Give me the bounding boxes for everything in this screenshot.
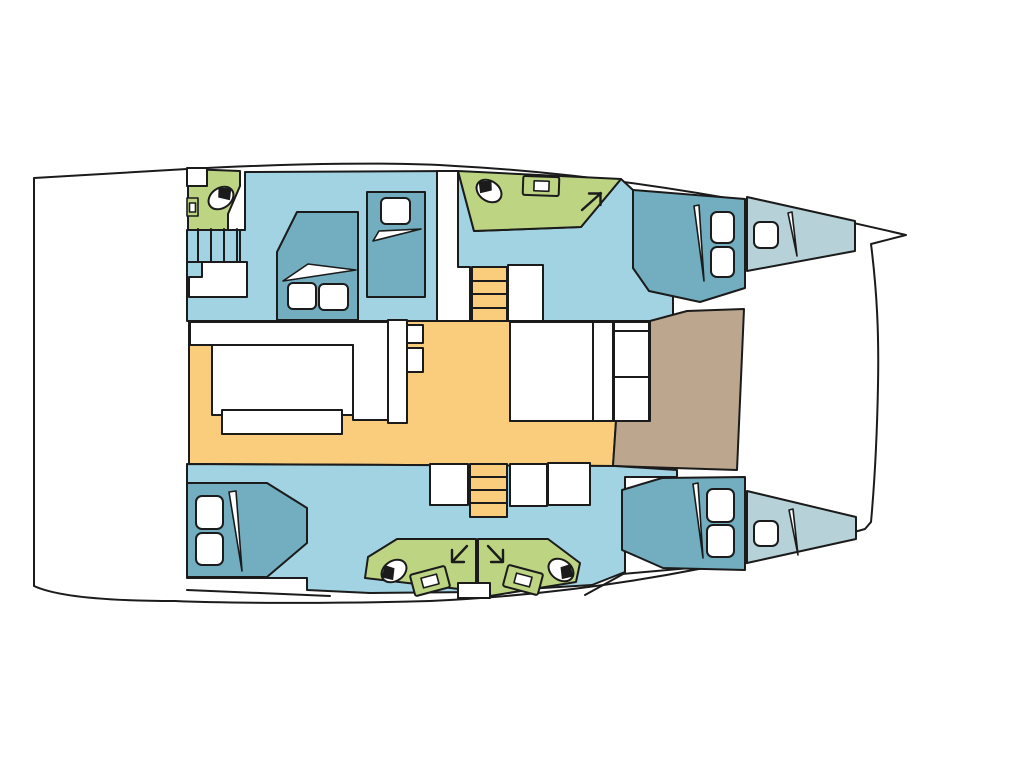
sink-icon bbox=[523, 176, 560, 196]
steps-icon bbox=[470, 464, 507, 517]
aft-galley-unit bbox=[614, 322, 649, 421]
aft-landing-right bbox=[510, 464, 547, 506]
pillow-icon bbox=[707, 525, 734, 557]
steps-icon bbox=[472, 267, 507, 322]
pillow-icon bbox=[196, 496, 223, 529]
dining-bench bbox=[593, 322, 613, 421]
aft-landing-left bbox=[430, 464, 468, 505]
pillow-icon bbox=[288, 283, 316, 309]
pillow-icon bbox=[707, 489, 734, 522]
starboard-forward-bed bbox=[633, 190, 745, 302]
salon-table-low bbox=[222, 410, 342, 434]
pillow-icon bbox=[711, 212, 734, 243]
pillow-icon bbox=[754, 521, 778, 546]
aft-deck-notch bbox=[458, 583, 490, 598]
galley-appliance bbox=[407, 348, 423, 372]
deck-plan-canvas bbox=[0, 0, 1024, 768]
salon-sofa bbox=[212, 345, 353, 415]
pillow-icon bbox=[381, 198, 410, 224]
sink-icon bbox=[187, 198, 198, 216]
pillow-icon bbox=[319, 284, 348, 310]
aft-landing-right2 bbox=[548, 463, 590, 505]
galley-appliance bbox=[407, 325, 423, 343]
port-landing-right bbox=[508, 265, 543, 322]
aft-deck-notch bbox=[187, 168, 207, 186]
pillow-icon bbox=[711, 247, 734, 277]
deck-plan-svg bbox=[0, 0, 1024, 768]
dining-table bbox=[510, 322, 593, 421]
galley-unit bbox=[388, 320, 407, 423]
pillow-icon bbox=[754, 222, 778, 248]
pillow-icon bbox=[196, 533, 223, 565]
